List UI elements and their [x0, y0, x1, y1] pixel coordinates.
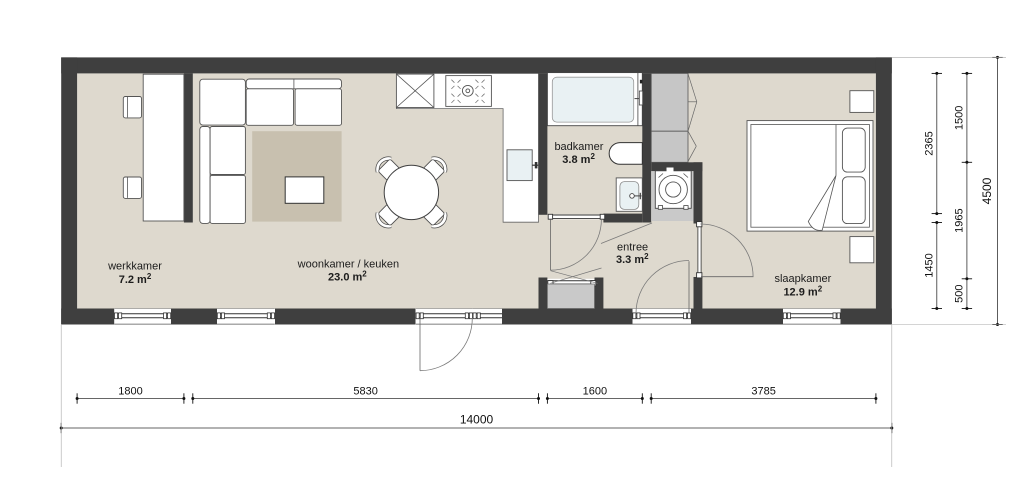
- svg-text:5830: 5830: [353, 385, 377, 397]
- svg-text:4500: 4500: [980, 177, 994, 204]
- svg-text:3785: 3785: [751, 385, 775, 397]
- svg-text:14000: 14000: [460, 412, 494, 426]
- svg-text:1600: 1600: [583, 385, 607, 397]
- svg-text:1500: 1500: [954, 106, 966, 130]
- svg-text:2365: 2365: [924, 131, 936, 155]
- svg-text:slaapkamer: slaapkamer: [774, 273, 831, 285]
- svg-text:1450: 1450: [924, 253, 936, 277]
- svg-text:badkamer: badkamer: [554, 141, 603, 153]
- svg-text:1800: 1800: [118, 385, 142, 397]
- svg-text:werkkamer: werkkamer: [107, 261, 162, 273]
- svg-text:23.0 m2: 23.0 m2: [328, 270, 367, 284]
- svg-text:500: 500: [954, 285, 966, 303]
- svg-text:12.9 m2: 12.9 m2: [783, 285, 822, 299]
- svg-text:1965: 1965: [954, 208, 966, 232]
- svg-text:woonkamer / keuken: woonkamer / keuken: [297, 259, 400, 271]
